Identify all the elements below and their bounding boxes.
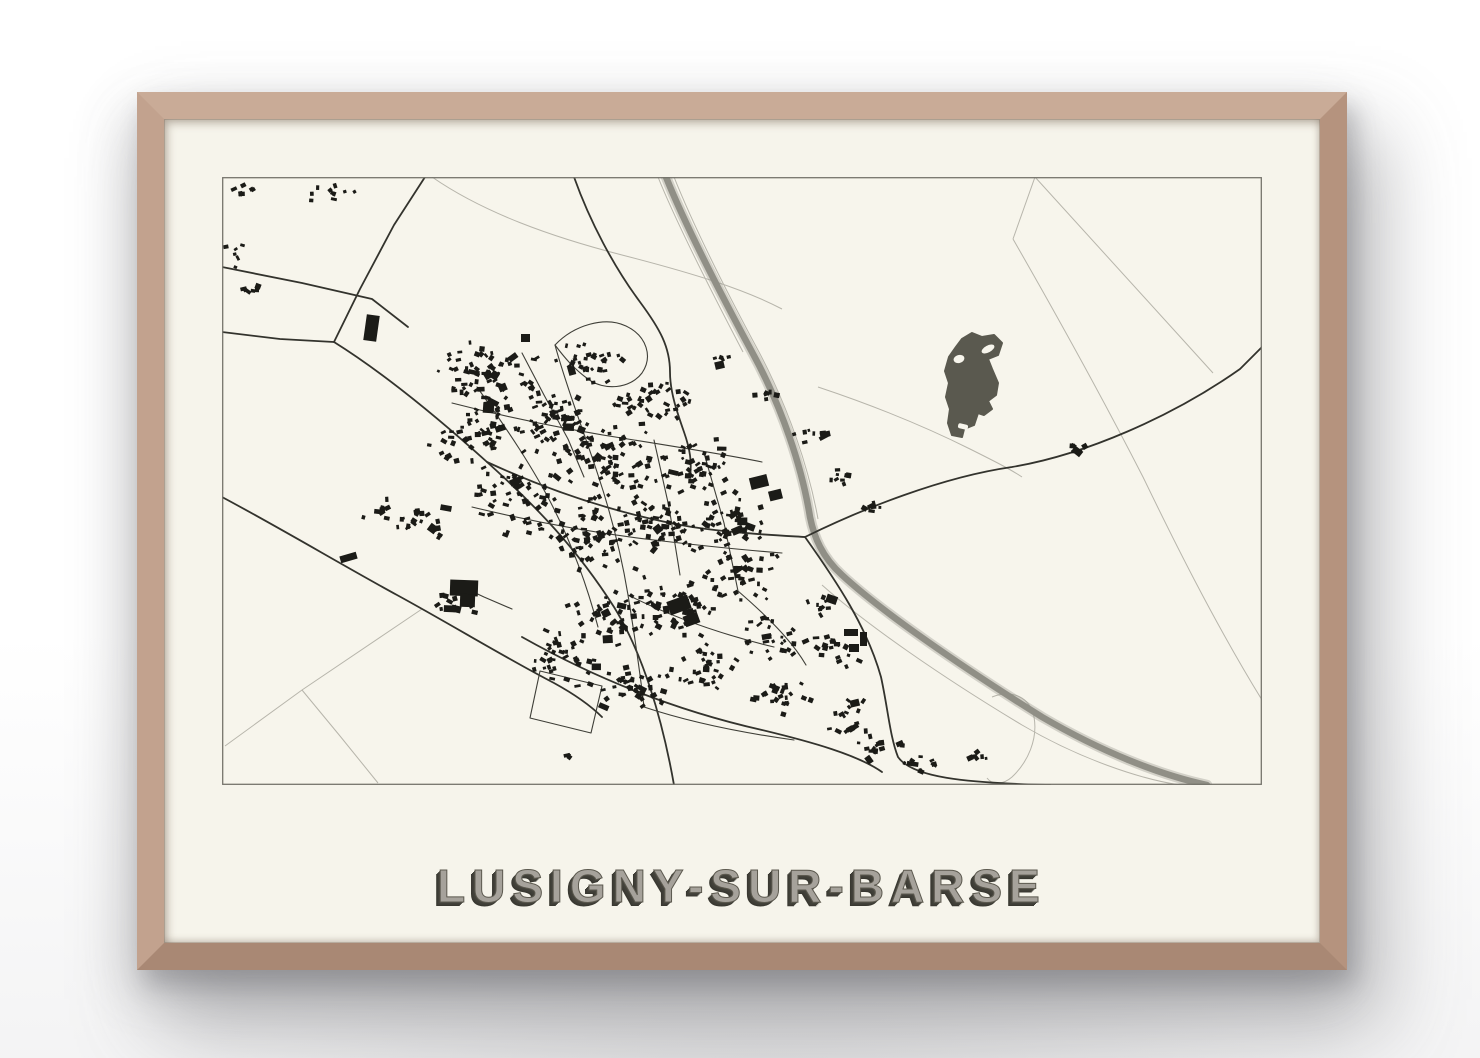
poster-paper: LUSIGNY-SUR-BARSE	[164, 119, 1320, 943]
photo-of-framed-map-poster: { "poster": { "title": "LUSIGNY-SUR-BARS…	[0, 0, 1480, 1058]
town-map-drawing	[222, 177, 1262, 785]
town-title: LUSIGNY-SUR-BARSE	[164, 859, 1320, 913]
poster-frame: LUSIGNY-SUR-BARSE	[137, 92, 1347, 970]
map-panel	[222, 177, 1262, 785]
